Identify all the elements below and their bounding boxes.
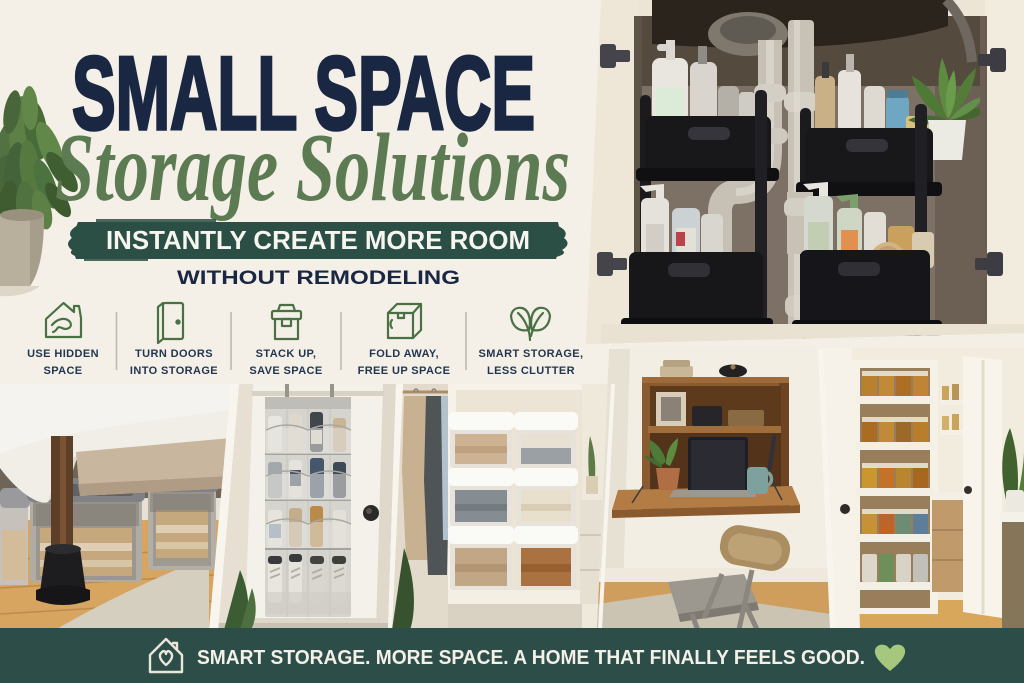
svg-text:STACK UP,: STACK UP, — [256, 348, 317, 360]
svg-text:LESS CLUTTER: LESS CLUTTER — [487, 365, 575, 377]
svg-text:SAVE SPACE: SAVE SPACE — [249, 365, 322, 377]
svg-text:INTO STORAGE: INTO STORAGE — [130, 365, 218, 377]
svg-text:INSTANTLY CREATE MORE ROOM: INSTANTLY CREATE MORE ROOM — [106, 225, 530, 255]
svg-text:SMART STORAGE. MORE SPACE. A H: SMART STORAGE. MORE SPACE. A HOME THAT F… — [197, 646, 865, 669]
svg-text:USE HIDDEN: USE HIDDEN — [27, 348, 99, 360]
svg-text:TURN DOORS: TURN DOORS — [135, 348, 213, 360]
svg-text:FREE UP SPACE: FREE UP SPACE — [358, 365, 451, 377]
svg-text:FOLD AWAY,: FOLD AWAY, — [369, 348, 439, 360]
svg-text:WITHOUT REMODELING: WITHOUT REMODELING — [177, 268, 460, 289]
svg-text:SPACE: SPACE — [43, 365, 82, 377]
svg-text:SMART STORAGE,: SMART STORAGE, — [478, 348, 583, 360]
svg-text:Storage Solutions: Storage Solutions — [55, 114, 570, 221]
